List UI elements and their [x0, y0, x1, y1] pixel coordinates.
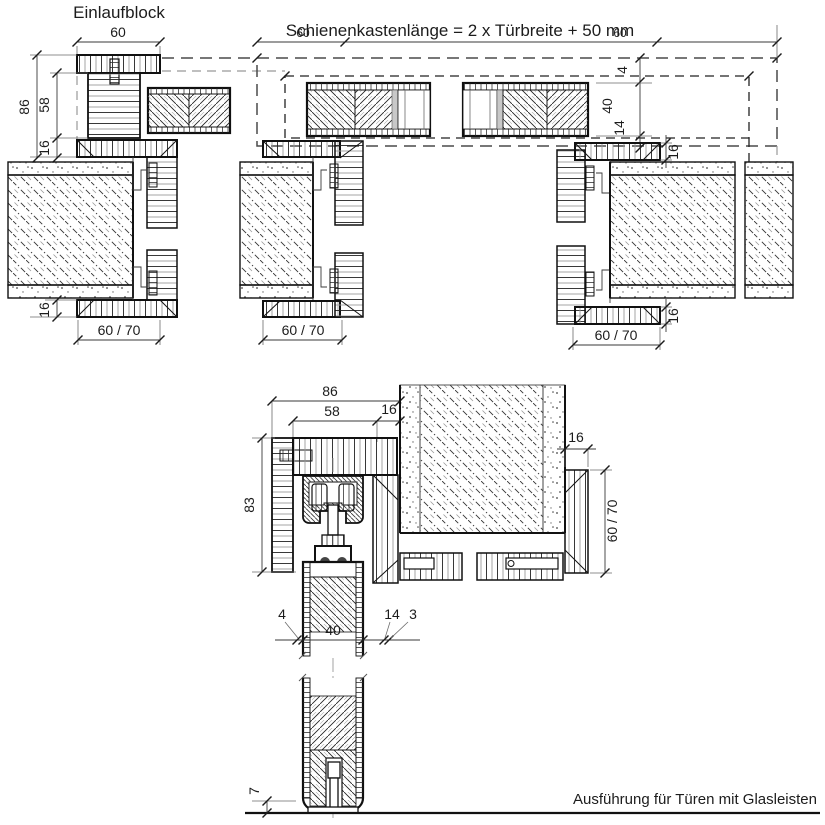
wall-plan-middle [240, 162, 313, 298]
pocket-profile-top [133, 157, 147, 190]
frame-screw-bottom [586, 272, 594, 296]
einlaufblock-title: Einlaufblock [73, 3, 165, 22]
dim-58-section: 58 [324, 403, 340, 419]
roller-wheel-right [339, 484, 354, 511]
detail-middle-jamb: 60 / 70 [240, 141, 363, 345]
dim-6070-vertical-group: 60 / 70 [590, 466, 620, 578]
rail-box-plan: 60 Schienenkastenlänge = 2 x Türbreite +… [162, 21, 782, 162]
rail-length-dimension: 60 Schienenkastenlänge = 2 x Türbreite +… [253, 21, 782, 47]
einlaufblock-body [88, 73, 140, 138]
wall-plan-right [610, 162, 793, 298]
soffit-profile-left [404, 558, 434, 569]
detail-einlaufblock: Einlaufblock 60 86 58 16 [8, 3, 230, 345]
dim-frame-width-right: 60 / 70 [569, 327, 665, 350]
door-panel-view1 [148, 88, 230, 133]
dim-6070-middle: 60 / 70 [282, 322, 325, 338]
frame-screw-top [330, 164, 338, 188]
wall-plan-left [8, 162, 133, 298]
dim-16-lower-left: 16 [36, 302, 52, 318]
dim-60-rail-right: 60 [613, 26, 627, 40]
dim-14-rail: 14 [611, 120, 627, 136]
dim-frame-width-middle: 60 / 70 [259, 320, 347, 345]
detail-right-jamb: 16 16 60 / 70 [557, 135, 793, 350]
soffit-boards [400, 553, 563, 580]
dim-7: 7 [246, 787, 262, 795]
roller-wheel-left [312, 484, 327, 511]
track-support-board [293, 438, 397, 475]
dim-16-jamb: 16 [568, 429, 584, 445]
dim-16-upper-left: 16 [36, 140, 52, 156]
dim-frame-width-left: 60 / 70 [74, 320, 165, 345]
dim-6070-left: 60 / 70 [98, 322, 141, 338]
door-panel-right-plan [463, 83, 588, 136]
dim-6070-vertical: 60 / 70 [604, 499, 620, 542]
floor-guide-pin-cap [328, 762, 340, 778]
dims-top: 86 58 16 [268, 383, 405, 442]
frame-screw-top [586, 166, 594, 190]
dim-16-bottom-right-group: 16 [660, 299, 681, 332]
dim-40-door-thickness: 40 [599, 98, 615, 114]
dim-86-section: 86 [322, 383, 338, 399]
dim-86-left: 86 [16, 99, 32, 115]
technical-drawing-sliding-door: 60 Schienenkastenlänge = 2 x Türbreite +… [0, 0, 825, 825]
door-section [299, 562, 367, 813]
dim-16-section-top: 16 [381, 401, 397, 417]
dim-58-left: 58 [36, 97, 52, 113]
dim-6070-right: 60 / 70 [595, 327, 638, 343]
dim-60-einlaufblock: 60 [110, 24, 126, 40]
dim-16-top-right: 16 [665, 144, 681, 160]
footer-note: Ausführung für Türen mit Glasleisten [573, 791, 817, 808]
frame-screw-bottom [149, 271, 157, 295]
rail-formula-label: Schienenkastenlänge = 2 x Türbreite + 50… [286, 21, 634, 40]
pocket-profile-bottom [133, 267, 147, 300]
dim-83: 83 [241, 497, 257, 513]
dim-16-bottom-right: 16 [665, 308, 681, 324]
frame-screw-top [149, 163, 157, 187]
dim-16-lower-left-group: 16 [30, 296, 77, 322]
frame-screw-bottom [330, 269, 338, 293]
hanger-nut [322, 535, 344, 546]
dim-4-section: 4 [278, 606, 286, 622]
dim-3-section: 3 [409, 606, 417, 622]
dim-4-rail: 4 [614, 66, 630, 74]
pocket-board [373, 475, 398, 583]
vertical-section: 86 58 16 [241, 383, 820, 818]
floor-guide-pin [330, 778, 338, 808]
jamb-board-right [565, 470, 588, 573]
wall-section [400, 385, 565, 533]
dim-40-section: 40 [325, 622, 341, 638]
door-panel-left-plan [307, 83, 430, 136]
dim-14-section: 14 [384, 606, 400, 622]
drawing-canvas: 60 Schienenkastenlänge = 2 x Türbreite +… [0, 0, 825, 825]
hanger-bolt [328, 505, 338, 535]
